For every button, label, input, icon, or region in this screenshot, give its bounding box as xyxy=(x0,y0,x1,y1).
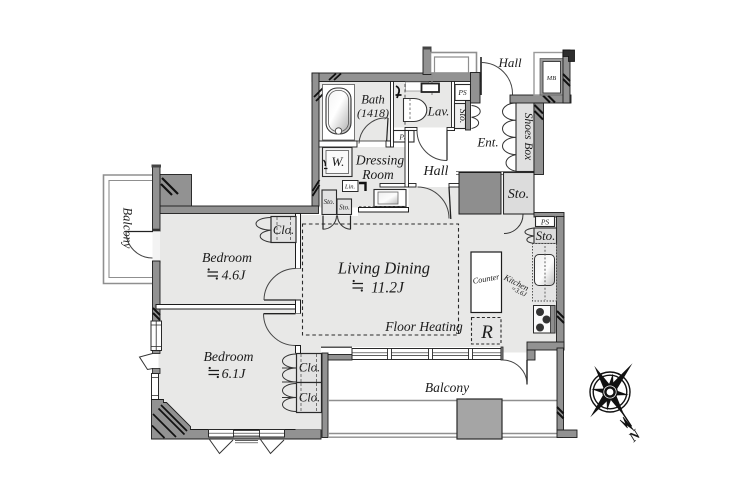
svg-text:Room: Room xyxy=(361,167,394,182)
svg-text:R: R xyxy=(480,322,493,343)
svg-text:11.2J: 11.2J xyxy=(371,280,405,297)
svg-text:Balcony: Balcony xyxy=(121,208,135,249)
svg-text:PS: PS xyxy=(457,88,467,97)
svg-text:6.1J: 6.1J xyxy=(222,367,247,382)
svg-text:4.6J: 4.6J xyxy=(222,269,247,284)
svg-text:Balcony: Balcony xyxy=(425,380,469,395)
svg-text:Ent.: Ent. xyxy=(476,135,498,150)
svg-text:Lin.: Lin. xyxy=(344,184,356,191)
svg-text:Sto.: Sto. xyxy=(536,228,556,243)
svg-text:Hall: Hall xyxy=(497,55,522,70)
svg-text:Clo.: Clo. xyxy=(273,223,294,237)
svg-text:Clo.: Clo. xyxy=(299,391,320,405)
svg-text:Bedroom: Bedroom xyxy=(202,250,252,265)
svg-text:Sto.: Sto. xyxy=(339,204,350,212)
svg-text:Shoes Box: Shoes Box xyxy=(522,113,534,161)
svg-text:MB: MB xyxy=(546,75,556,82)
svg-text:Dressing: Dressing xyxy=(355,153,405,168)
svg-text:Hall: Hall xyxy=(423,164,449,179)
svg-text:N: N xyxy=(626,427,645,446)
svg-text:Sto.: Sto. xyxy=(508,187,529,202)
svg-text:Floor Heating: Floor Heating xyxy=(384,319,463,334)
svg-text:W.: W. xyxy=(332,154,345,169)
svg-text:Sto.: Sto. xyxy=(324,198,335,206)
svg-text:Bedroom: Bedroom xyxy=(203,349,253,364)
svg-text:Bath: Bath xyxy=(361,93,385,107)
svg-text:Living Dining: Living Dining xyxy=(337,259,430,278)
svg-text:Clo.: Clo. xyxy=(299,361,320,375)
svg-text:Lav.: Lav. xyxy=(427,104,450,119)
svg-text:PS: PS xyxy=(540,218,550,227)
